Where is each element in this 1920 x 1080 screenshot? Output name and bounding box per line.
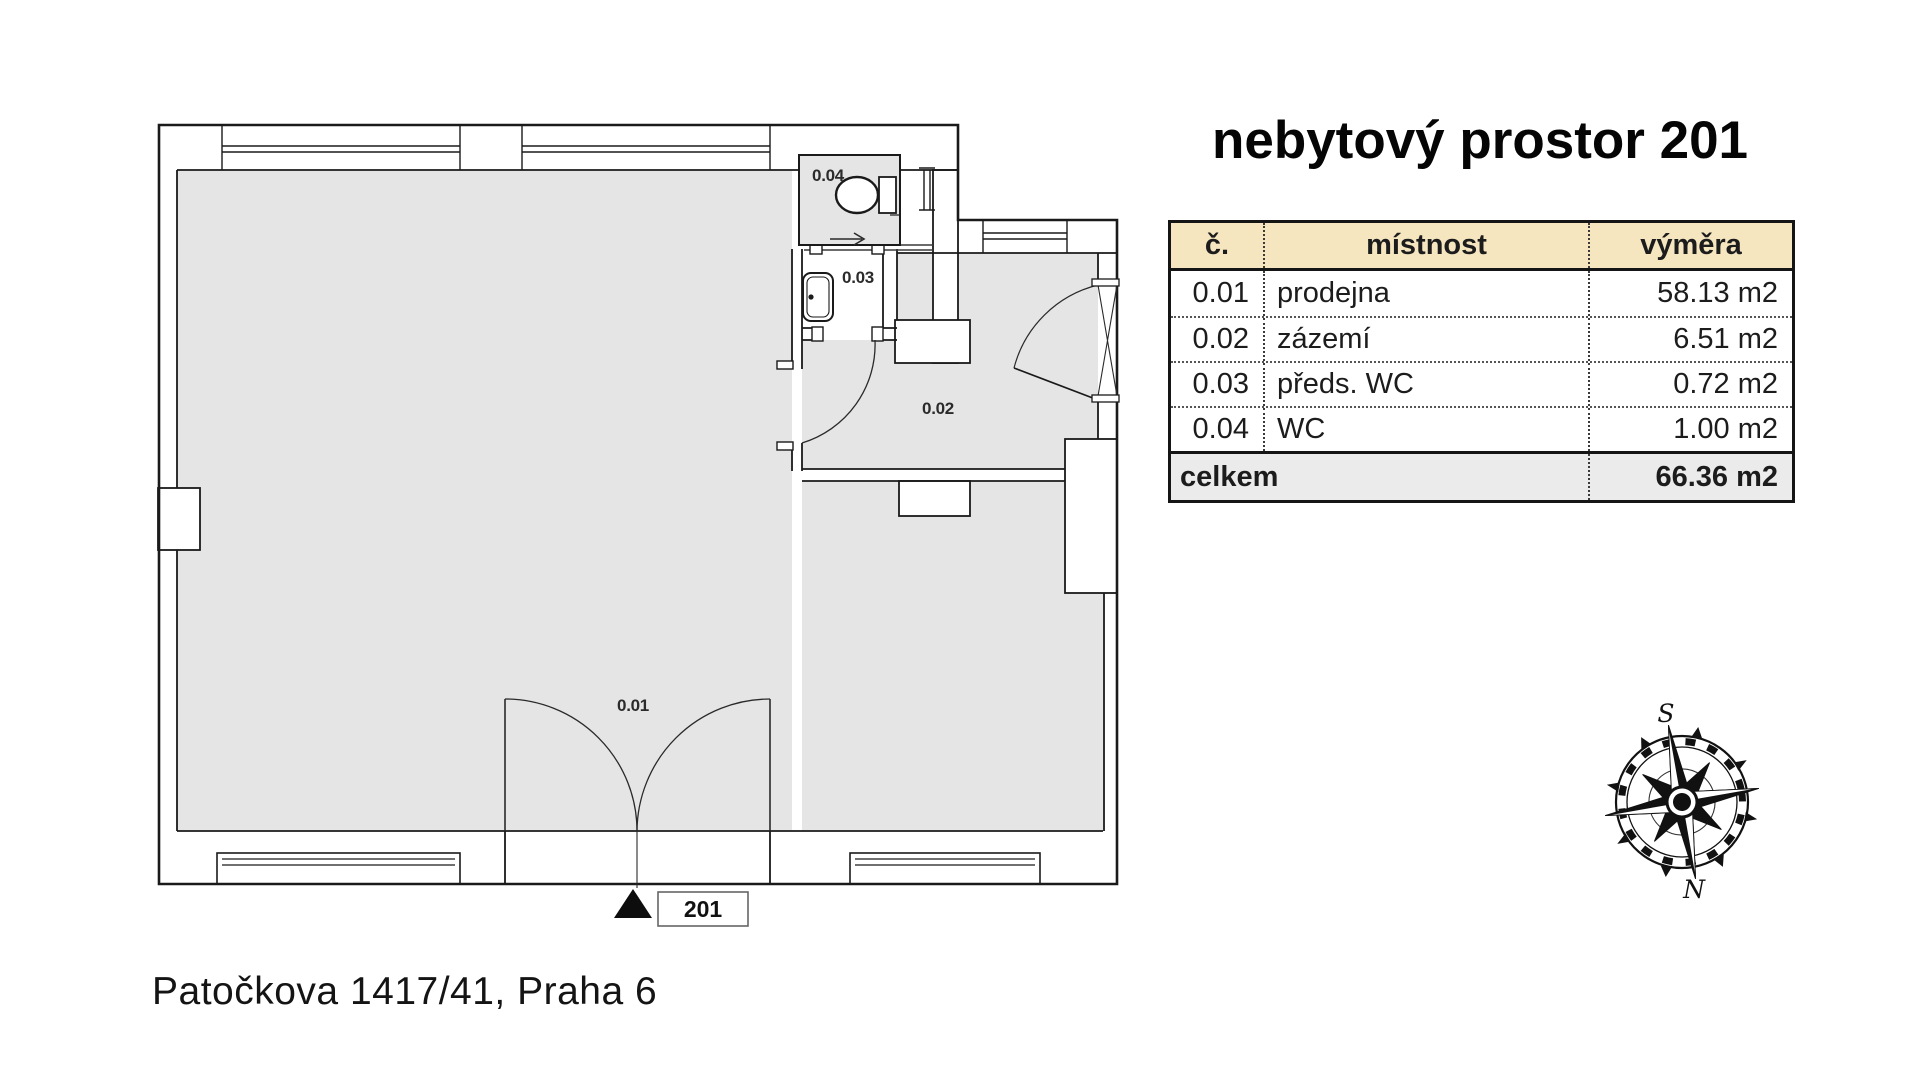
toilet-icon — [836, 177, 896, 213]
address-text: Patočkova 1417/41, Praha 6 — [152, 970, 657, 1014]
compass-south-label: S — [1657, 699, 1674, 728]
table-row: 0.02 zázemí 6.51 m2 — [1171, 316, 1792, 361]
corridor-floor — [802, 340, 897, 469]
row-room: předs. WC — [1263, 363, 1588, 406]
compass-north-label: N — [1682, 875, 1706, 904]
table-row: 0.04 WC 1.00 m2 — [1171, 406, 1792, 451]
room-label-0-04: 0.04 — [812, 166, 845, 185]
right-wall-niche — [1065, 439, 1117, 593]
area-table: č. místnost výměra 0.01 prodejna 58.13 m… — [1168, 220, 1795, 503]
row-room: WC — [1263, 408, 1588, 451]
room-prodejna-floor — [177, 170, 792, 831]
row-area: 0.72 m2 — [1588, 363, 1792, 406]
page: 0.01 0.02 0.03 0.04 201 — [0, 0, 1920, 1080]
entrance-triangle-icon — [614, 889, 652, 918]
room-prodejna-floor-right — [802, 481, 1103, 831]
column-block — [895, 320, 970, 363]
compass-rose-icon: S N — [1592, 699, 1773, 904]
room-label-0-02: 0.02 — [922, 399, 954, 418]
table-row: 0.01 prodejna 58.13 m2 — [1171, 271, 1792, 316]
row-area: 1.00 m2 — [1588, 408, 1792, 451]
row-area: 58.13 m2 — [1588, 271, 1792, 316]
left-wall-niche — [158, 488, 200, 550]
row-number: 0.03 — [1171, 363, 1263, 406]
bottom-windows — [217, 831, 1040, 884]
header-number: č. — [1171, 223, 1263, 268]
room-label-0-01: 0.01 — [617, 696, 649, 715]
total-label: celkem — [1171, 454, 1588, 500]
row-room: prodejna — [1263, 271, 1588, 316]
table-header-row: č. místnost výměra — [1171, 223, 1792, 271]
total-area: 66.36 m2 — [1588, 454, 1792, 500]
entrance-marker: 201 — [614, 889, 748, 926]
table-row: 0.03 předs. WC 0.72 m2 — [1171, 361, 1792, 406]
row-area: 6.51 m2 — [1588, 318, 1792, 361]
table-total-row: celkem 66.36 m2 — [1171, 451, 1792, 500]
page-title: nebytový prostor 201 — [1150, 110, 1810, 171]
sink-icon — [803, 273, 833, 321]
row-number: 0.02 — [1171, 318, 1263, 361]
row-room: zázemí — [1263, 318, 1588, 361]
room-label-0-03: 0.03 — [842, 268, 874, 287]
entrance-label: 201 — [684, 896, 723, 922]
row-number: 0.01 — [1171, 271, 1263, 316]
header-area: výměra — [1588, 223, 1792, 268]
wall-notch-bottom-of-zazemi — [899, 481, 970, 516]
header-room: místnost — [1263, 223, 1588, 268]
row-number: 0.04 — [1171, 408, 1263, 451]
